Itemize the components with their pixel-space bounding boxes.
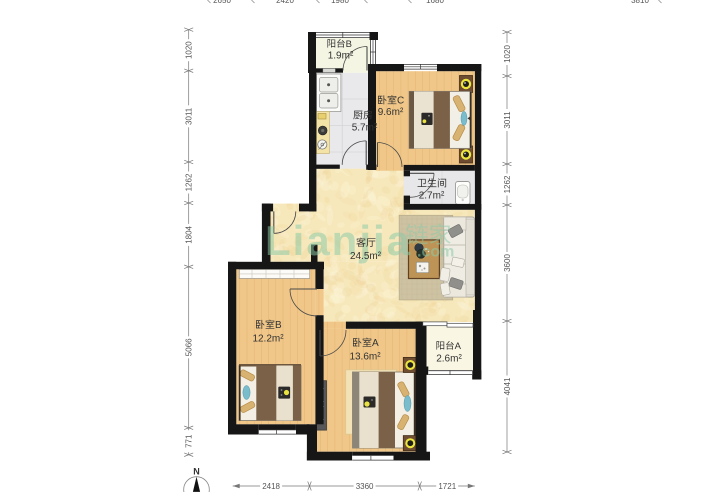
svg-text:771: 771 xyxy=(184,434,193,448)
svg-text:3360: 3360 xyxy=(356,482,374,491)
svg-text:5.7m²: 5.7m² xyxy=(352,123,378,134)
svg-text:A: A xyxy=(372,338,379,349)
svg-text:B: B xyxy=(275,320,282,331)
svg-text:3810: 3810 xyxy=(631,0,649,5)
svg-text:2420: 2420 xyxy=(276,0,294,5)
svg-text:3600: 3600 xyxy=(503,254,512,272)
svg-text:1680: 1680 xyxy=(426,0,444,5)
svg-text:24.5m²: 24.5m² xyxy=(350,251,382,262)
svg-text:1020: 1020 xyxy=(185,41,194,59)
svg-text:1020: 1020 xyxy=(503,45,512,63)
svg-text:2650: 2650 xyxy=(213,0,231,5)
svg-text:9.6m²: 9.6m² xyxy=(378,107,404,118)
svg-text:2418: 2418 xyxy=(262,482,280,491)
svg-text:1262: 1262 xyxy=(185,173,194,191)
svg-text:12.2m²: 12.2m² xyxy=(252,334,284,345)
svg-text:.com: .com xyxy=(417,244,454,261)
svg-text:Lianjia: Lianjia xyxy=(265,217,412,264)
svg-text:B: B xyxy=(346,39,352,50)
svg-text:5066: 5066 xyxy=(184,338,193,356)
svg-text:13.6m²: 13.6m² xyxy=(349,352,381,363)
svg-text:1980: 1980 xyxy=(331,0,349,5)
svg-text:1804: 1804 xyxy=(185,225,194,243)
svg-text:1262: 1262 xyxy=(503,175,512,193)
svg-text:4041: 4041 xyxy=(503,377,512,395)
svg-text:2.7m²: 2.7m² xyxy=(419,191,445,202)
svg-text:N: N xyxy=(193,467,200,477)
svg-text:1.9m²: 1.9m² xyxy=(328,51,354,62)
svg-text:2.6m²: 2.6m² xyxy=(436,354,462,365)
svg-text:C: C xyxy=(397,96,404,107)
svg-text:3011: 3011 xyxy=(503,111,512,129)
svg-text:A: A xyxy=(455,341,462,352)
svg-text:3011: 3011 xyxy=(185,107,194,125)
svg-text:1721: 1721 xyxy=(438,482,456,491)
